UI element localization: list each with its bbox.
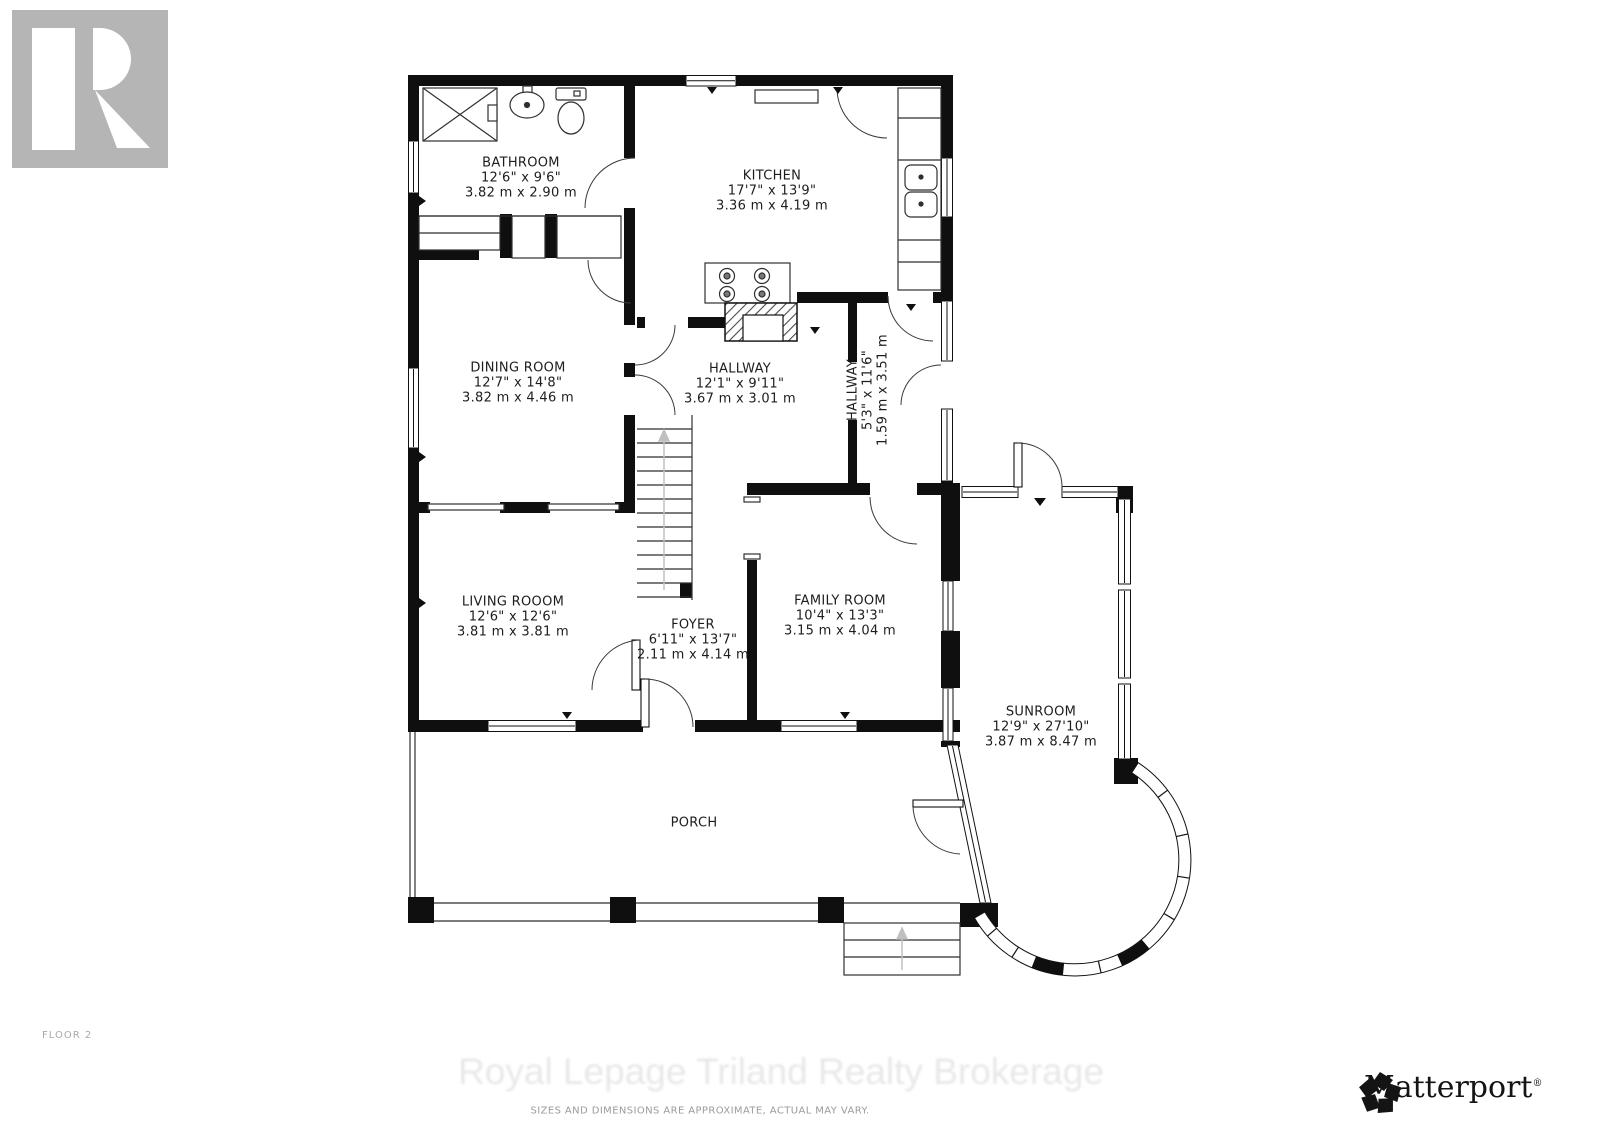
room-label-hallway-side: HALLWAY 5'3" x 11'6" 1.59 m x 3.51 m (846, 334, 891, 446)
room-name: KITCHEN (716, 169, 828, 184)
room-dim-metric: 3.87 m x 8.47 m (985, 735, 1097, 750)
room-label-hallway: HALLWAY 12'1" x 9'11" 3.67 m x 3.01 m (684, 362, 796, 407)
room-label-dining-room: DINING ROOM 12'7" x 14'8" 3.82 m x 4.46 … (462, 361, 574, 406)
stove (705, 263, 790, 303)
room-dim-metric: 1.59 m x 3.51 m (876, 334, 891, 446)
room-dim-imperial: 12'6" x 9'6" (465, 171, 577, 186)
room-name: HALLWAY (684, 362, 796, 377)
room-name: LIVING ROOOM (457, 595, 569, 610)
room-name: HALLWAY (846, 334, 861, 446)
sunroom-curved-wall (975, 763, 1191, 976)
realtor-logo-icon (12, 10, 172, 170)
room-name: PORCH (671, 816, 718, 831)
room-dim-imperial: 12'1" x 9'11" (684, 377, 796, 392)
room-dim-imperial: 12'6" x 12'6" (457, 610, 569, 625)
stairs-up-arrow-icon (659, 430, 669, 590)
floorplan-page: BATHROOM 12'6" x 9'6" 3.82 m x 2.90 m KI… (0, 0, 1600, 1132)
porch-steps-arrow-icon (897, 928, 907, 970)
fireplace (725, 303, 797, 341)
toilet-tank (556, 88, 586, 100)
room-name: DINING ROOM (462, 361, 574, 376)
room-dim-imperial: 5'3" x 11'6" (861, 334, 876, 446)
room-label-family-room: FAMILY ROOM 10'4" x 13'3" 3.15 m x 4.04 … (784, 594, 896, 639)
room-dim-metric: 3.82 m x 2.90 m (465, 186, 577, 201)
room-label-sunroom: SUNROOM 12'9" x 27'10" 3.87 m x 8.47 m (985, 705, 1097, 750)
room-dim-metric: 3.67 m x 3.01 m (684, 392, 796, 407)
room-dim-metric: 3.36 m x 4.19 m (716, 199, 828, 214)
room-name: FAMILY ROOM (784, 594, 896, 609)
matterport-reg-mark: ® (1532, 1078, 1542, 1089)
floor-label: FLOOR 2 (42, 1030, 92, 1041)
brokerage-watermark: Royal Lepage Triland Realty Brokerage (458, 1051, 1104, 1093)
room-dim-imperial: 12'7" x 14'8" (462, 376, 574, 391)
bathroom-fixtures (423, 86, 586, 141)
room-dim-metric: 3.15 m x 4.04 m (784, 624, 896, 639)
matterport-logo: Matterport® (1356, 1070, 1542, 1105)
room-label-living-room: LIVING ROOOM 12'6" x 12'6" 3.81 m x 3.81… (457, 595, 569, 640)
room-dim-imperial: 12'9" x 27'10" (985, 720, 1097, 735)
room-name: FOYER (637, 618, 749, 633)
room-label-porch: PORCH (671, 816, 718, 831)
room-dim-metric: 3.82 m x 4.46 m (462, 391, 574, 406)
room-dim-metric: 2.11 m x 4.14 m (637, 648, 749, 663)
room-dim-imperial: 10'4" x 13'3" (784, 609, 896, 624)
room-label-foyer: FOYER 6'11" x 13'7" 2.11 m x 4.14 m (637, 618, 749, 663)
room-name: BATHROOM (465, 156, 577, 171)
room-dim-imperial: 17'7" x 13'9" (716, 184, 828, 199)
room-dim-metric: 3.81 m x 3.81 m (457, 625, 569, 640)
matterport-logo-icon (1356, 1070, 1404, 1118)
room-label-bathroom: BATHROOM 12'6" x 9'6" 3.82 m x 2.90 m (465, 156, 577, 201)
realtor-logo: REALTOR® (12, 10, 182, 47)
room-label-kitchen: KITCHEN 17'7" x 13'9" 3.36 m x 4.19 m (716, 169, 828, 214)
disclaimer-text: SIZES AND DIMENSIONS ARE APPROXIMATE, AC… (531, 1106, 870, 1117)
room-name: SUNROOM (985, 705, 1097, 720)
room-dim-imperial: 6'11" x 13'7" (637, 633, 749, 648)
toilet-bowl (558, 102, 584, 134)
